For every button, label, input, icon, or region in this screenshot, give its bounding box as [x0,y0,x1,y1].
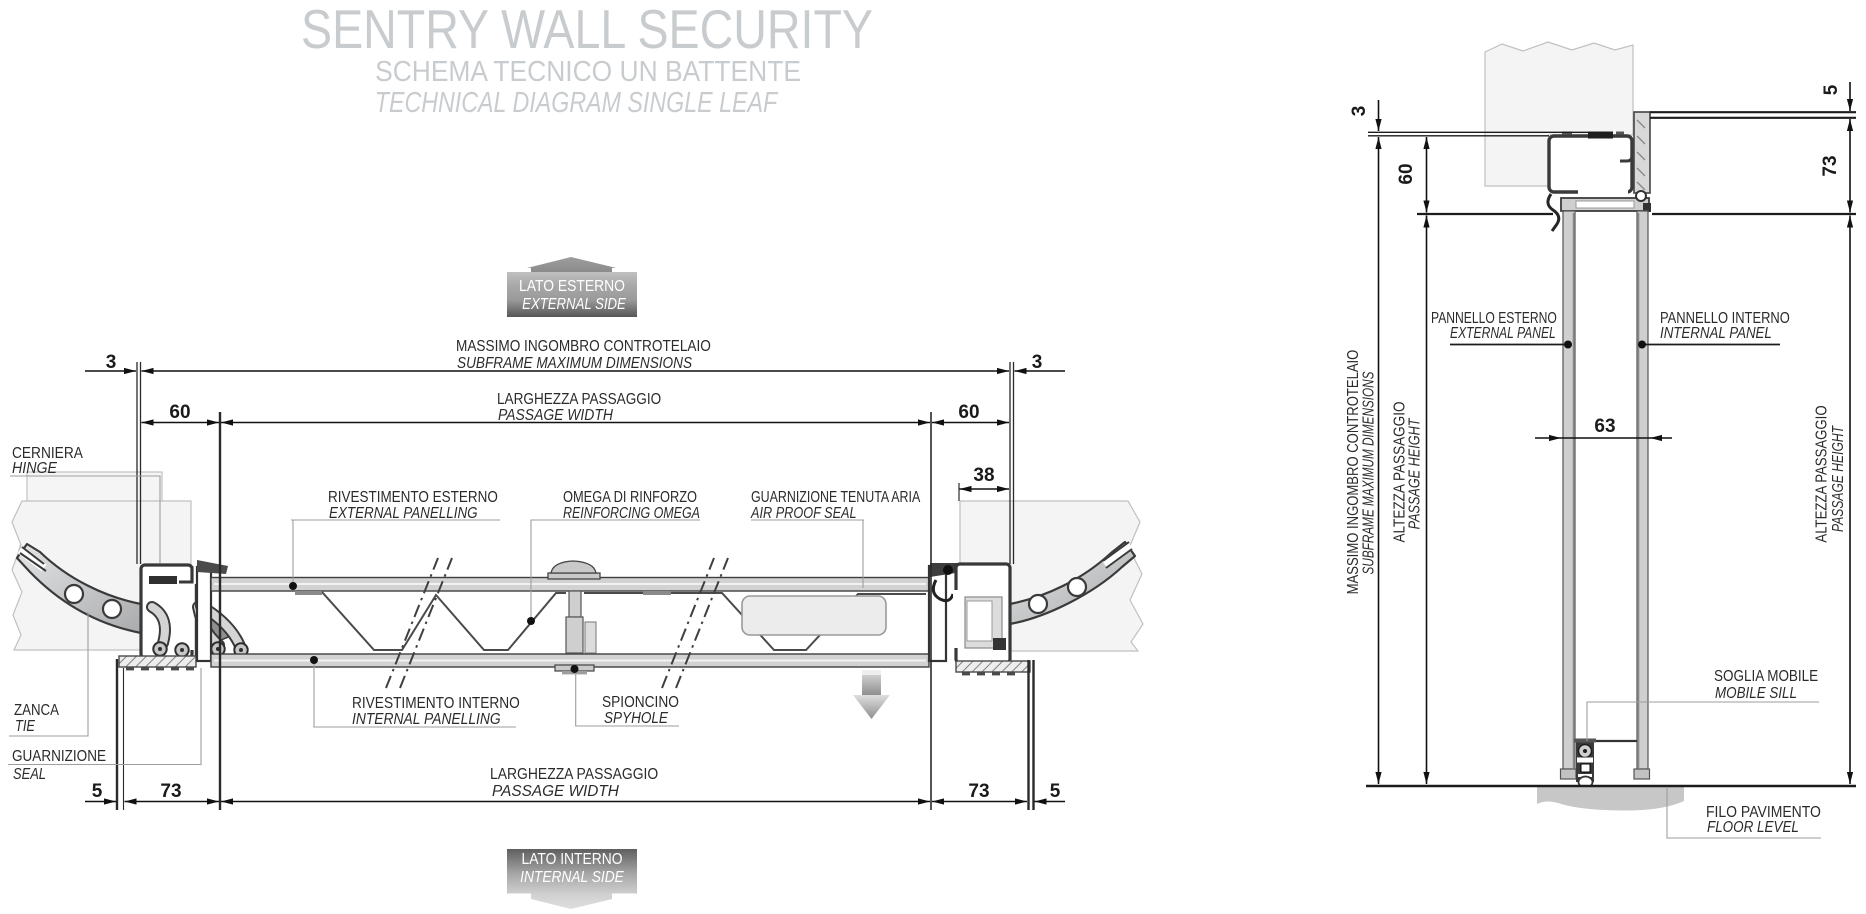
svg-text:LARGHEZZA PASSAGGIO: LARGHEZZA PASSAGGIO [490,766,658,783]
svg-text:INTERNAL SIDE: INTERNAL SIDE [520,869,624,886]
svg-text:LATO INTERNO: LATO INTERNO [522,851,623,868]
svg-text:SUBFRAME MAXIMUM DIMENSIONS: SUBFRAME MAXIMUM DIMENSIONS [1360,371,1377,575]
svg-text:TECHNICAL DIAGRAM SINGLE LEAF: TECHNICAL DIAGRAM SINGLE LEAF [375,86,779,119]
svg-text:SPIONCINO: SPIONCINO [602,694,679,711]
svg-text:38: 38 [973,465,994,486]
svg-text:REINFORCING OMEGA: REINFORCING OMEGA [563,504,700,522]
svg-text:LARGHEZZA PASSAGGIO: LARGHEZZA PASSAGGIO [497,391,661,408]
svg-text:INTERNAL PANEL: INTERNAL PANEL [1660,325,1772,342]
svg-text:SUBFRAME MAXIMUM DIMENSIONS: SUBFRAME MAXIMUM DIMENSIONS [457,355,692,372]
svg-text:HINGE: HINGE [12,460,58,477]
svg-text:RIVESTIMENTO INTERNO: RIVESTIMENTO INTERNO [352,695,520,712]
svg-text:73: 73 [160,781,181,802]
svg-text:SCHEMA TECNICO UN BATTENTE: SCHEMA TECNICO UN BATTENTE [375,55,801,87]
svg-text:SOGLIA MOBILE: SOGLIA MOBILE [1714,668,1818,685]
svg-text:MOBILE SILL: MOBILE SILL [1715,685,1797,702]
svg-text:FLOOR LEVEL: FLOOR LEVEL [1707,819,1799,836]
svg-text:EXTERNAL PANEL: EXTERNAL PANEL [1450,324,1556,342]
svg-text:SENTRY WALL SECURITY: SENTRY WALL SECURITY [301,0,873,60]
svg-text:73: 73 [1820,155,1841,176]
svg-text:GUARNIZIONE: GUARNIZIONE [12,748,106,765]
svg-text:63: 63 [1594,416,1615,437]
svg-text:AIR PROOF SEAL: AIR PROOF SEAL [750,505,856,522]
svg-text:LATO ESTERNO: LATO ESTERNO [519,278,625,295]
svg-text:PASSAGE WIDTH: PASSAGE WIDTH [492,783,620,800]
svg-text:SEAL: SEAL [13,766,46,783]
svg-text:3: 3 [1032,352,1043,373]
svg-text:5: 5 [1050,781,1061,802]
svg-text:3: 3 [106,352,117,373]
svg-text:EXTERNAL SIDE: EXTERNAL SIDE [522,296,626,313]
svg-text:3: 3 [1349,106,1370,117]
svg-text:ZANCA: ZANCA [14,702,59,719]
svg-text:PASSAGE HEIGHT: PASSAGE HEIGHT [1405,417,1423,529]
svg-text:SPYHOLE: SPYHOLE [604,710,668,727]
svg-text:5: 5 [1821,84,1842,95]
svg-text:GUARNIZIONE TENUTA ARIA: GUARNIZIONE TENUTA ARIA [751,488,921,506]
svg-text:5: 5 [92,781,103,802]
svg-text:RIVESTIMENTO ESTERNO: RIVESTIMENTO ESTERNO [328,489,498,506]
svg-text:60: 60 [1396,163,1417,184]
svg-text:PASSAGE WIDTH: PASSAGE WIDTH [498,407,613,424]
svg-text:60: 60 [958,402,979,423]
svg-text:PASSAGE HEIGHT: PASSAGE HEIGHT [1829,425,1847,532]
svg-text:EXTERNAL PANELLING: EXTERNAL PANELLING [329,505,478,522]
svg-text:INTERNAL PANELLING: INTERNAL PANELLING [352,711,501,728]
svg-text:MASSIMO INGOMBRO CONTROTELAIO: MASSIMO INGOMBRO CONTROTELAIO [456,338,711,355]
svg-text:60: 60 [169,402,190,423]
svg-text:73: 73 [968,781,989,802]
svg-text:TIE: TIE [15,718,35,735]
